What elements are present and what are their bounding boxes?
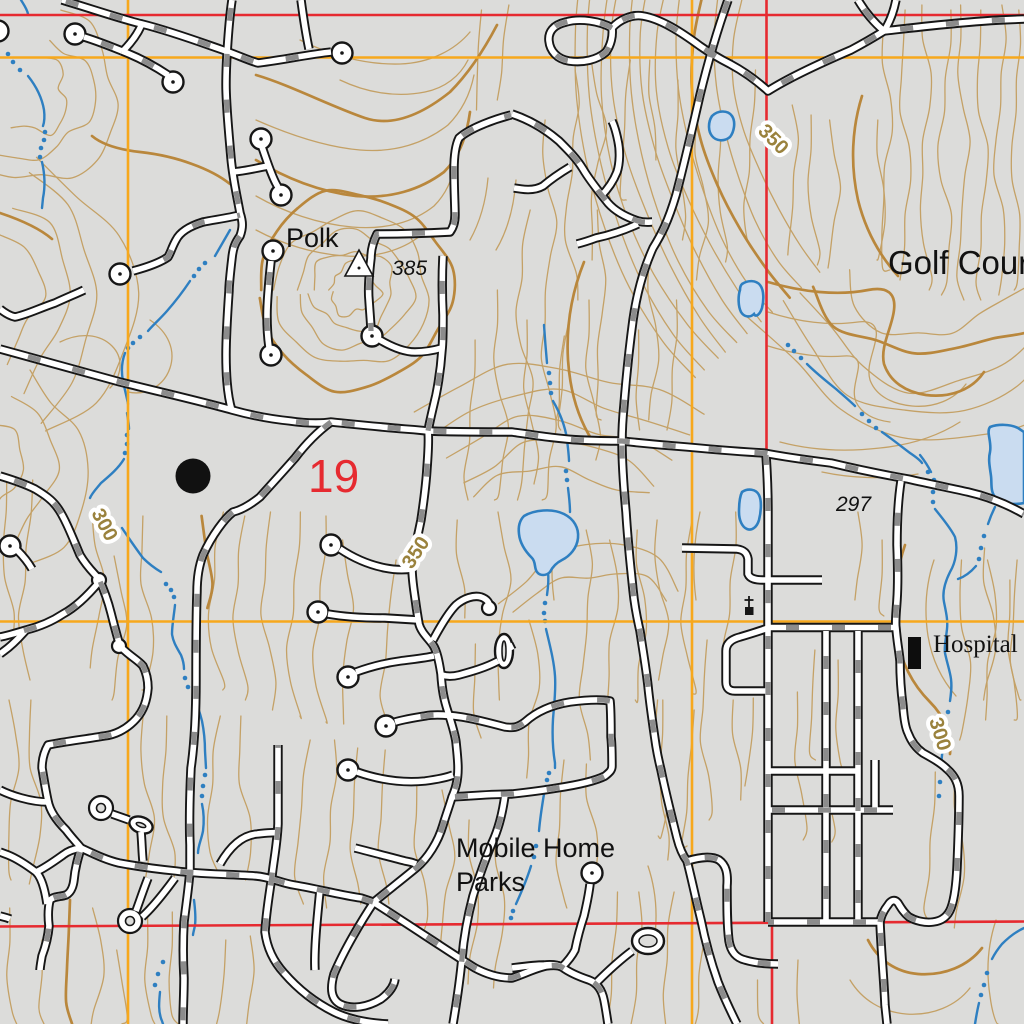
svg-text:Polk: Polk [286,223,339,253]
svg-text:385: 385 [392,257,427,280]
svg-text:19: 19 [308,450,359,502]
svg-text:Parks: Parks [456,867,525,897]
svg-text:297: 297 [835,493,872,516]
svg-text:Mobile Home: Mobile Home [456,833,615,863]
svg-text:Hospital: Hospital [933,631,1018,658]
svg-text:Golf Course: Golf Course [888,244,1024,281]
